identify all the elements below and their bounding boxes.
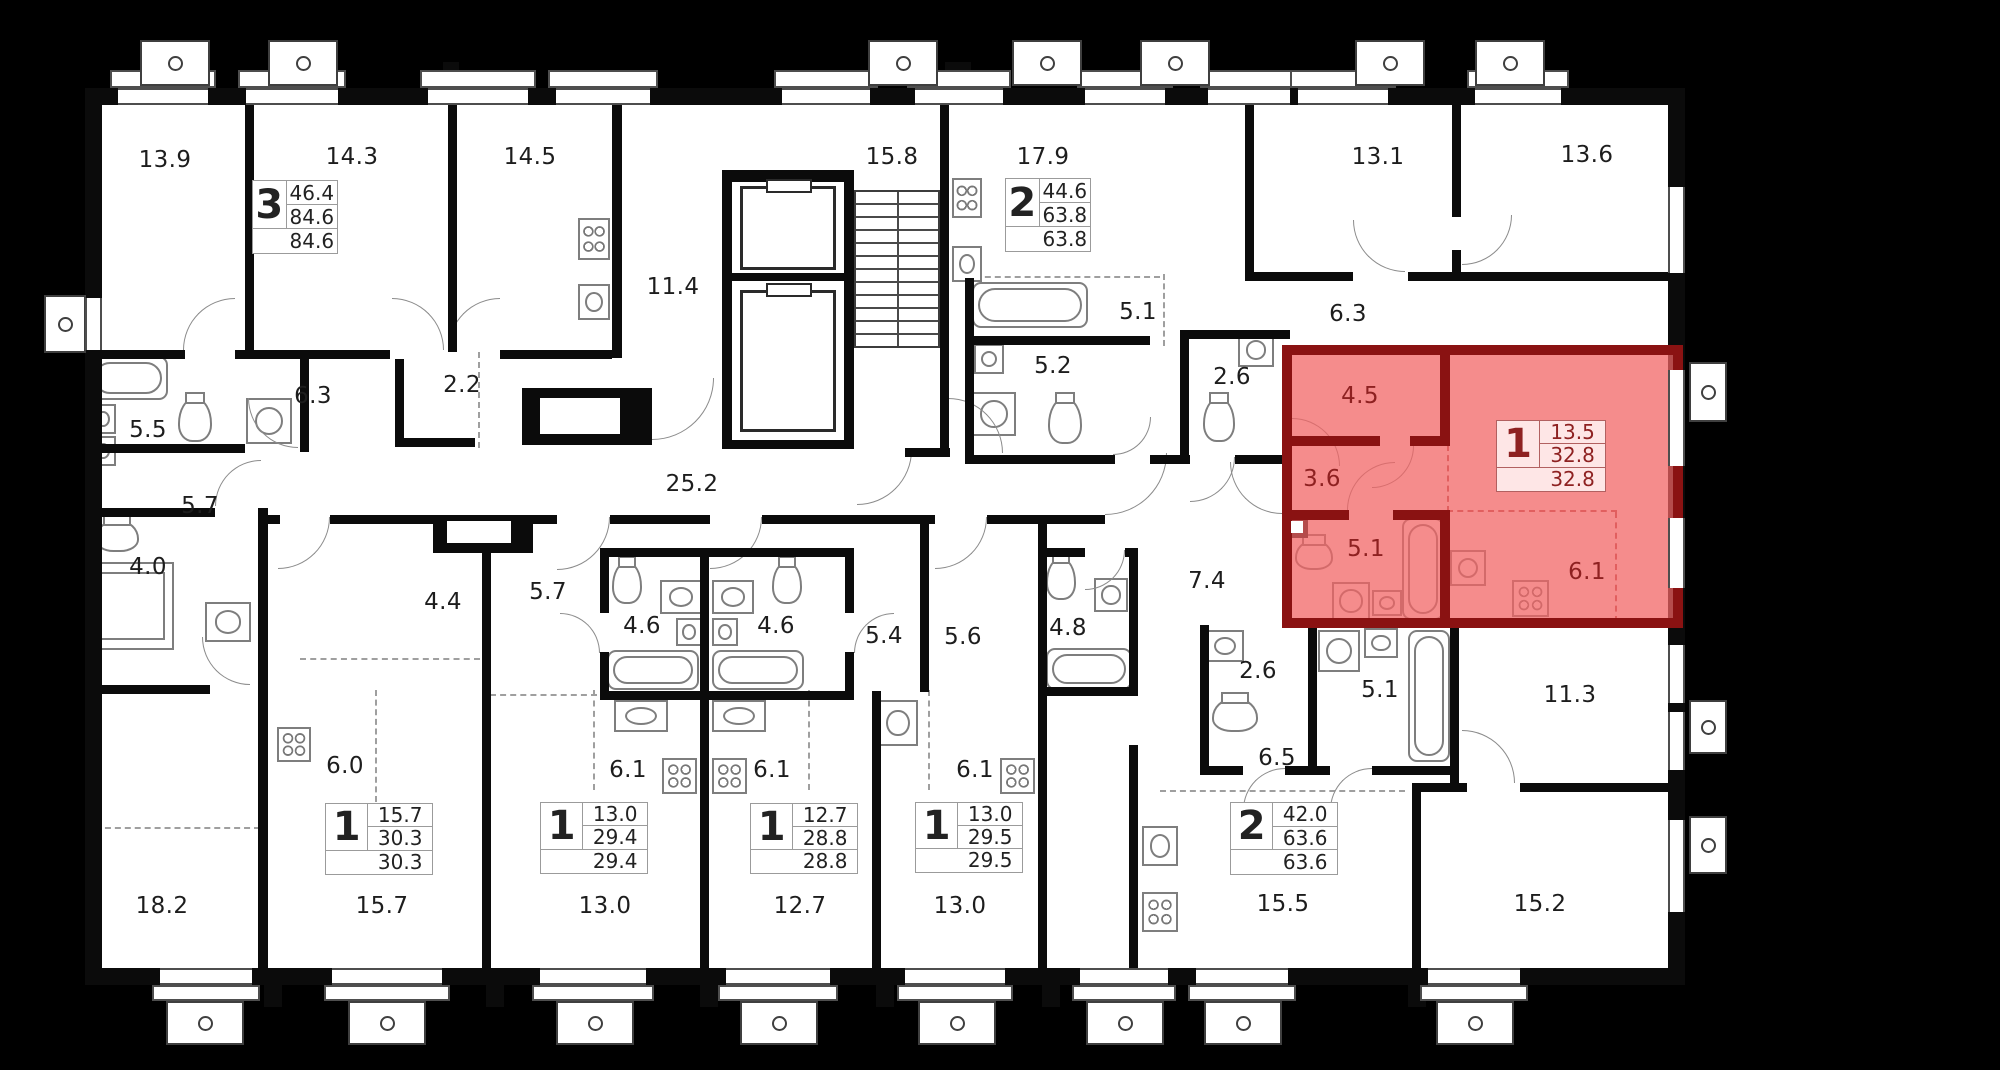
zone-divider bbox=[300, 658, 480, 660]
window-icon bbox=[1668, 820, 1685, 912]
window-icon bbox=[118, 88, 208, 105]
room-area-label: 6.3 bbox=[294, 383, 332, 409]
wall bbox=[1454, 272, 1683, 281]
room-area-label: 13.1 bbox=[1352, 144, 1405, 170]
area-value: 32.8 bbox=[1540, 444, 1605, 467]
wall bbox=[722, 440, 854, 449]
window-icon bbox=[1428, 968, 1520, 985]
staircase-icon bbox=[854, 190, 940, 348]
wall bbox=[1129, 745, 1138, 985]
toilet-icon bbox=[1048, 398, 1082, 444]
wall bbox=[1308, 625, 1317, 775]
wall bbox=[1412, 783, 1421, 985]
wall bbox=[610, 515, 710, 524]
zone-divider bbox=[478, 352, 480, 448]
wall bbox=[1372, 766, 1455, 775]
area-value: 29.5 bbox=[958, 849, 1022, 872]
balcony-vent-icon bbox=[268, 40, 338, 86]
area-value: 44.6 bbox=[1040, 179, 1090, 203]
wall bbox=[1038, 548, 1085, 557]
window-sill bbox=[1420, 985, 1528, 1001]
floor-plan-canvas: 13.914.314.511.415.817.913.113.66.32.25.… bbox=[0, 0, 2000, 1070]
room-area-label: 2.6 bbox=[1213, 364, 1251, 390]
room-area-label: 12.7 bbox=[774, 893, 827, 919]
toilet-icon bbox=[1046, 558, 1076, 600]
toilet-icon bbox=[612, 562, 642, 604]
window-sill bbox=[420, 70, 536, 88]
room-area-label: 5.6 bbox=[944, 624, 982, 650]
room-area-label: 18.2 bbox=[136, 893, 189, 919]
balcony-vent-icon bbox=[140, 40, 210, 86]
wall bbox=[1450, 625, 1459, 787]
room-area-label: 4.6 bbox=[623, 613, 661, 639]
wall bbox=[1200, 766, 1243, 775]
hall-closet bbox=[447, 521, 511, 543]
window-icon bbox=[246, 88, 338, 105]
stove-icon bbox=[712, 758, 747, 794]
wall bbox=[1245, 272, 1353, 281]
wall bbox=[533, 515, 557, 524]
balcony-vent-icon bbox=[1140, 40, 1210, 86]
wall bbox=[1452, 250, 1461, 274]
room-area-label: 15.2 bbox=[1514, 891, 1567, 917]
zone-divider bbox=[375, 690, 377, 802]
stove-icon bbox=[1000, 758, 1035, 794]
room-area-label: 4.8 bbox=[1049, 615, 1087, 641]
wall bbox=[395, 438, 475, 447]
area-value: 29.4 bbox=[583, 826, 647, 849]
wall bbox=[102, 350, 185, 359]
wall bbox=[1245, 105, 1254, 274]
wall bbox=[482, 524, 491, 985]
wall bbox=[1129, 548, 1138, 696]
balcony-vent-icon bbox=[1355, 40, 1425, 86]
wall bbox=[845, 548, 854, 613]
apartment-info-table: 115.730.330.3 bbox=[325, 803, 433, 875]
window-icon bbox=[428, 88, 528, 105]
area-value: 63.8 bbox=[1040, 203, 1090, 227]
wall-stub bbox=[1042, 985, 1060, 1007]
balcony-vent-icon bbox=[918, 1001, 996, 1045]
rooms-count: 2 bbox=[1231, 803, 1273, 850]
area-value: 63.8 bbox=[1040, 227, 1090, 251]
duct-shaft bbox=[540, 398, 620, 434]
wall bbox=[1180, 330, 1290, 339]
balcony-vent-icon bbox=[1012, 40, 1082, 86]
room-area-label: 6.0 bbox=[326, 753, 364, 779]
window-icon bbox=[540, 968, 646, 985]
room-area-label: 11.3 bbox=[1544, 682, 1597, 708]
area-value: 13.5 bbox=[1540, 421, 1605, 444]
toilet-icon bbox=[178, 398, 212, 442]
wall bbox=[762, 515, 935, 524]
room-area-label: 7.4 bbox=[1188, 568, 1226, 594]
balcony-vent-icon bbox=[556, 1001, 634, 1045]
stove-icon bbox=[277, 727, 311, 762]
balcony-vent-icon bbox=[1689, 362, 1727, 422]
window-icon bbox=[85, 298, 102, 350]
window-icon bbox=[160, 968, 252, 985]
elevator-icon bbox=[740, 290, 836, 432]
rooms-count: 1 bbox=[751, 804, 793, 850]
zone-divider bbox=[955, 276, 1160, 278]
window-icon bbox=[915, 88, 1003, 105]
wall bbox=[1180, 330, 1189, 460]
sink-icon bbox=[660, 580, 702, 614]
window-icon bbox=[556, 88, 650, 105]
area-value: 29.5 bbox=[958, 826, 1022, 849]
bathtub-icon bbox=[712, 650, 804, 690]
room-area-label: 4.5 bbox=[1341, 383, 1379, 409]
balcony-vent-icon bbox=[1086, 1001, 1164, 1045]
wall bbox=[1408, 272, 1454, 281]
room-area-label: 6.1 bbox=[753, 757, 791, 783]
sink-icon bbox=[712, 700, 766, 732]
stove-icon bbox=[578, 218, 610, 260]
room-area-label: 13.0 bbox=[934, 893, 987, 919]
apartment-info-table: 113.029.429.4 bbox=[540, 802, 648, 874]
area-value: 32.8 bbox=[1540, 468, 1605, 491]
wall bbox=[1200, 625, 1209, 775]
rooms-count: 1 bbox=[1497, 421, 1540, 468]
wall bbox=[1520, 783, 1683, 792]
balcony-vent-icon bbox=[1204, 1001, 1282, 1045]
wall bbox=[268, 515, 280, 524]
room-area-label: 5.1 bbox=[1119, 299, 1157, 325]
wall-stub bbox=[486, 985, 504, 1007]
bathtub-icon bbox=[1408, 630, 1450, 762]
area-value: 13.0 bbox=[958, 803, 1022, 826]
sink-icon bbox=[1142, 826, 1178, 866]
window-sill bbox=[897, 985, 1013, 1001]
window-icon bbox=[1196, 968, 1288, 985]
area-value: 12.7 bbox=[793, 804, 857, 827]
balcony-vent-icon bbox=[348, 1001, 426, 1045]
area-value: 63.6 bbox=[1273, 827, 1337, 851]
window-sill bbox=[548, 70, 658, 88]
room-area-label: 2.6 bbox=[1239, 658, 1277, 684]
wall bbox=[85, 88, 102, 985]
wall bbox=[258, 508, 268, 985]
stove-icon bbox=[662, 758, 697, 794]
apartment-info-table: 113.029.529.5 bbox=[915, 802, 1023, 873]
sink-icon bbox=[974, 344, 1004, 374]
zone-divider bbox=[593, 690, 595, 790]
rooms-count: 3 bbox=[253, 181, 287, 229]
room-area-label: 13.6 bbox=[1561, 142, 1614, 168]
window-sill bbox=[1188, 985, 1296, 1001]
window-sill bbox=[152, 985, 260, 1001]
stove-icon bbox=[1142, 892, 1178, 932]
room-area-label: 6.1 bbox=[1568, 559, 1606, 585]
room-area-label: 5.7 bbox=[181, 493, 219, 519]
window-icon bbox=[782, 88, 870, 105]
room-area-label: 5.4 bbox=[865, 623, 903, 649]
wall bbox=[85, 444, 245, 453]
room-area-label: 6.3 bbox=[1329, 301, 1367, 327]
room-area-label: 5.5 bbox=[129, 417, 167, 443]
wall bbox=[965, 455, 1115, 464]
room-area-label: 15.7 bbox=[356, 893, 409, 919]
window-icon bbox=[1208, 88, 1290, 105]
area-value: 42.0 bbox=[1273, 803, 1337, 827]
wall bbox=[1125, 548, 1138, 557]
window-sill bbox=[1072, 985, 1176, 1001]
wall bbox=[722, 170, 732, 448]
wall bbox=[612, 105, 622, 358]
wall bbox=[85, 685, 210, 694]
balcony-vent-icon bbox=[44, 295, 86, 353]
washing-machine-icon bbox=[1318, 630, 1360, 672]
window-sill bbox=[718, 985, 838, 1001]
window-sill bbox=[1200, 70, 1298, 88]
sink-icon bbox=[712, 580, 754, 614]
window-sill bbox=[324, 985, 450, 1001]
duct-shaft bbox=[1291, 521, 1303, 533]
zone-divider bbox=[1163, 274, 1165, 346]
highlight-wall bbox=[1292, 510, 1349, 520]
sink-icon bbox=[578, 284, 610, 320]
sink-icon bbox=[676, 618, 702, 646]
wall bbox=[1412, 783, 1467, 792]
wall bbox=[1038, 515, 1047, 985]
toilet-icon bbox=[772, 562, 802, 604]
room-area-label: 14.3 bbox=[326, 144, 379, 170]
room-area-label: 11.4 bbox=[647, 274, 700, 300]
zone-divider bbox=[95, 827, 260, 829]
rooms-count: 1 bbox=[326, 804, 368, 851]
window-icon bbox=[1668, 187, 1685, 273]
wall bbox=[722, 273, 854, 281]
apartment-info-table: 113.532.832.8 bbox=[1496, 420, 1606, 492]
area-value: 29.4 bbox=[583, 850, 647, 873]
wall bbox=[500, 350, 612, 359]
bathtub-icon bbox=[1046, 648, 1132, 690]
area-value: 46.4 bbox=[287, 181, 337, 205]
room-area-label: 14.5 bbox=[504, 144, 557, 170]
apartment-info-table: 346.484.684.6 bbox=[252, 180, 338, 254]
window-sill bbox=[774, 70, 878, 88]
wall-stub bbox=[700, 985, 718, 1007]
room-area-label: 2.2 bbox=[443, 372, 481, 398]
wall bbox=[872, 691, 881, 985]
wall bbox=[600, 691, 854, 700]
window-icon bbox=[1668, 645, 1685, 703]
window-icon bbox=[1085, 88, 1165, 105]
room-area-label: 6.5 bbox=[1258, 745, 1296, 771]
window-icon bbox=[1475, 88, 1561, 105]
wall bbox=[905, 448, 950, 457]
window-icon bbox=[905, 968, 1005, 985]
wall bbox=[965, 278, 974, 460]
stove-icon bbox=[952, 178, 982, 218]
room-area-label: 6.1 bbox=[956, 757, 994, 783]
area-value: 84.6 bbox=[287, 229, 337, 253]
room-area-label: 15.8 bbox=[866, 144, 919, 170]
wall bbox=[235, 350, 390, 359]
wall bbox=[940, 105, 949, 457]
room-area-label: 15.5 bbox=[1257, 891, 1310, 917]
room-area-label: 13.0 bbox=[579, 893, 632, 919]
wall bbox=[1308, 766, 1330, 775]
window-icon bbox=[1668, 712, 1685, 770]
sink-icon bbox=[614, 700, 668, 732]
wall bbox=[1038, 687, 1138, 696]
highlight-wall bbox=[1440, 510, 1450, 628]
area-value: 13.0 bbox=[583, 803, 647, 826]
balcony-vent-icon bbox=[1475, 40, 1545, 86]
window-icon bbox=[1668, 370, 1685, 466]
room-area-label: 5.2 bbox=[1034, 353, 1072, 379]
sink-icon bbox=[205, 602, 251, 642]
wall bbox=[600, 548, 850, 557]
wall bbox=[844, 170, 854, 448]
balcony-vent-icon bbox=[868, 40, 938, 86]
room-area-label: 3.6 bbox=[1303, 466, 1341, 492]
sink-icon bbox=[1364, 628, 1398, 658]
highlight-wall bbox=[1282, 345, 1683, 355]
rooms-count: 2 bbox=[1006, 179, 1040, 227]
apartment-info-table: 244.663.863.8 bbox=[1005, 178, 1091, 252]
wall bbox=[965, 336, 1150, 345]
area-value: 28.8 bbox=[793, 850, 857, 873]
area-value: 84.6 bbox=[287, 205, 337, 229]
balcony-vent-icon bbox=[1436, 1001, 1514, 1045]
balcony-vent-icon bbox=[1689, 700, 1727, 754]
apartment-info-table: 242.063.663.6 bbox=[1230, 802, 1338, 875]
wall bbox=[1452, 105, 1461, 217]
balcony-vent-icon bbox=[740, 1001, 818, 1045]
toilet-icon bbox=[1203, 398, 1235, 442]
zone-divider bbox=[490, 694, 597, 696]
room-area-label: 5.7 bbox=[529, 579, 567, 605]
sink-icon bbox=[712, 618, 738, 646]
toilet-icon bbox=[1212, 698, 1258, 732]
window-icon bbox=[332, 968, 442, 985]
room-area-label: 4.6 bbox=[757, 613, 795, 639]
bathtub-icon bbox=[972, 282, 1088, 328]
wall bbox=[1150, 455, 1190, 464]
area-value: 63.6 bbox=[1273, 850, 1337, 874]
highlight-wall bbox=[1440, 345, 1450, 446]
wall bbox=[1235, 455, 1285, 464]
room-area-label: 5.1 bbox=[1361, 677, 1399, 703]
room-area-label: 13.9 bbox=[139, 147, 192, 173]
wall bbox=[395, 359, 404, 444]
rooms-count: 1 bbox=[916, 803, 958, 849]
wall bbox=[700, 548, 709, 985]
balcony-vent-icon bbox=[166, 1001, 244, 1045]
area-value: 30.3 bbox=[368, 827, 432, 850]
highlight-wall bbox=[1282, 345, 1292, 628]
room-area-label: 25.2 bbox=[666, 471, 719, 497]
elevator-icon bbox=[740, 186, 836, 270]
window-icon bbox=[1668, 518, 1685, 588]
room-area-label: 4.4 bbox=[424, 589, 462, 615]
wall-stub bbox=[264, 985, 282, 1007]
area-value: 28.8 bbox=[793, 827, 857, 850]
area-value: 30.3 bbox=[368, 851, 432, 874]
sink-icon bbox=[952, 246, 982, 282]
room-area-label: 4.0 bbox=[129, 554, 167, 580]
wall bbox=[330, 515, 433, 524]
highlight-wall bbox=[1292, 436, 1380, 446]
rooms-count: 1 bbox=[541, 803, 583, 850]
room-area-label: 17.9 bbox=[1017, 144, 1070, 170]
window-icon bbox=[1080, 968, 1168, 985]
highlight-wall bbox=[1410, 436, 1450, 446]
wall bbox=[920, 520, 929, 692]
apartment-info-table: 112.728.828.8 bbox=[750, 803, 858, 874]
zone-divider bbox=[928, 690, 930, 790]
room-area-label: 5.1 bbox=[1347, 536, 1385, 562]
window-icon bbox=[1298, 88, 1388, 105]
bathtub-icon bbox=[607, 650, 699, 690]
room-area-label: 6.1 bbox=[609, 757, 647, 783]
window-icon bbox=[726, 968, 830, 985]
window-sill bbox=[532, 985, 654, 1001]
wall bbox=[448, 105, 457, 352]
area-value: 15.7 bbox=[368, 804, 432, 827]
balcony-vent-icon bbox=[1689, 816, 1727, 874]
highlight-wall bbox=[1282, 618, 1683, 628]
sink-icon bbox=[878, 700, 918, 746]
zone-divider bbox=[808, 690, 810, 790]
wall bbox=[600, 548, 609, 613]
wall-stub bbox=[876, 985, 894, 1007]
